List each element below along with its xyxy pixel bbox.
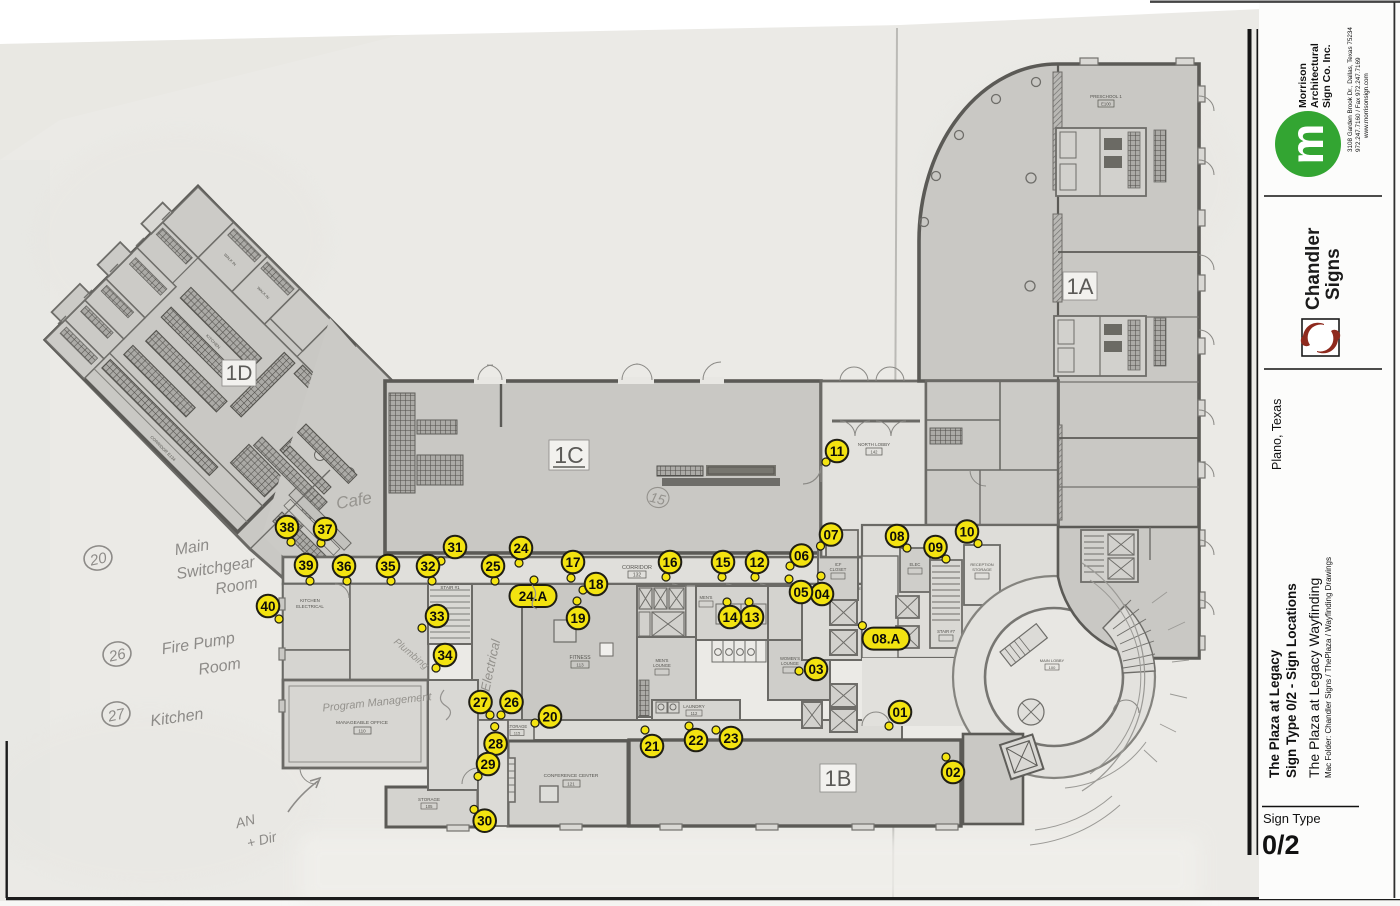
svg-text:31: 31 <box>447 540 463 555</box>
svg-text:1B: 1B <box>825 766 852 791</box>
svg-text:Sign Type: Sign Type <box>1263 811 1321 826</box>
svg-text:STORAGE: STORAGE <box>418 797 440 802</box>
svg-text:38: 38 <box>279 520 295 535</box>
svg-text:15: 15 <box>715 555 731 570</box>
svg-text:09: 09 <box>928 540 943 555</box>
svg-text:28: 28 <box>488 736 504 751</box>
svg-text:26: 26 <box>504 695 520 710</box>
svg-text:The Plaza at Legacy Wayfinding: The Plaza at Legacy Wayfinding <box>1306 578 1322 778</box>
svg-text:110: 110 <box>358 729 366 734</box>
svg-text:01: 01 <box>892 705 908 720</box>
svg-text:16: 16 <box>662 555 678 570</box>
svg-text:ELEC: ELEC <box>910 562 921 567</box>
svg-text:33: 33 <box>429 609 445 624</box>
svg-text:STAIR #7: STAIR #7 <box>937 629 956 634</box>
svg-text:Mac Folder: Chandler Signs / T: Mac Folder: Chandler Signs / ThePlaza / … <box>1324 557 1333 778</box>
svg-text:LOUNGE: LOUNGE <box>781 661 799 666</box>
svg-text:37: 37 <box>317 522 332 537</box>
svg-text:29: 29 <box>480 757 495 772</box>
svg-text:MANAGEABLE OFFICE: MANAGEABLE OFFICE <box>336 720 388 726</box>
svg-text:13: 13 <box>744 610 760 625</box>
svg-text:08: 08 <box>889 529 905 544</box>
svg-text:20: 20 <box>542 709 557 724</box>
svg-text:STORAGE: STORAGE <box>507 724 528 729</box>
svg-text:10: 10 <box>959 524 974 539</box>
svg-text:113: 113 <box>576 663 584 668</box>
svg-text:35: 35 <box>380 559 396 574</box>
svg-text:23: 23 <box>723 731 739 746</box>
svg-text:32: 32 <box>420 559 435 574</box>
svg-text:11: 11 <box>830 444 845 459</box>
svg-text:STORAGE: STORAGE <box>972 567 992 572</box>
svg-text:40: 40 <box>260 599 275 614</box>
svg-text:36: 36 <box>336 559 352 574</box>
svg-text:The Plaza at Legacy: The Plaza at Legacy <box>1267 649 1282 778</box>
svg-text:PRESCHOOL 1: PRESCHOOL 1 <box>1090 94 1122 99</box>
svg-text:17: 17 <box>565 555 580 570</box>
svg-text:07: 07 <box>823 527 838 542</box>
svg-text:MAIN LOBBY: MAIN LOBBY <box>1040 658 1065 663</box>
svg-text:MEN'S: MEN'S <box>700 595 713 600</box>
svg-text:Sign Type 0/2 - Sign Locations: Sign Type 0/2 - Sign Locations <box>1284 583 1299 778</box>
svg-text:142: 142 <box>871 450 879 455</box>
svg-text:03: 03 <box>808 662 824 677</box>
svg-text:27: 27 <box>473 695 488 710</box>
svg-text:1D: 1D <box>226 362 253 385</box>
svg-text:1C: 1C <box>554 442 583 468</box>
svg-text:21: 21 <box>644 739 660 754</box>
svg-text:22: 22 <box>688 733 703 748</box>
svg-text:14: 14 <box>722 610 738 625</box>
svg-text:08.A: 08.A <box>872 631 901 646</box>
svg-text:STAIR #1: STAIR #1 <box>440 585 460 590</box>
svg-text:ELECTRICAL: ELECTRICAL <box>296 604 324 609</box>
svg-text:06: 06 <box>794 548 810 563</box>
svg-text:30: 30 <box>477 814 492 829</box>
svg-text:LOUNGE: LOUNGE <box>653 663 671 668</box>
svg-text:25: 25 <box>485 559 501 574</box>
svg-text:CONFERENCE CENTER: CONFERENCE CENTER <box>544 773 599 779</box>
svg-text:FITNESS: FITNESS <box>569 655 591 661</box>
svg-text:CLOSET: CLOSET <box>830 567 847 572</box>
svg-text:KITCHEN: KITCHEN <box>300 598 320 603</box>
svg-text:34: 34 <box>437 648 453 663</box>
svg-text:121: 121 <box>567 782 575 787</box>
svg-text:04: 04 <box>814 587 830 602</box>
svg-text:05: 05 <box>793 585 809 600</box>
svg-text:105: 105 <box>426 804 434 809</box>
svg-text:18: 18 <box>588 577 604 592</box>
svg-text:NORTH LOBBY: NORTH LOBBY <box>858 442 890 447</box>
svg-text:112: 112 <box>691 711 698 716</box>
svg-text:Plano, Texas: Plano, Texas <box>1270 399 1284 470</box>
svg-text:132: 132 <box>633 573 642 579</box>
svg-text:CORRIDOR: CORRIDOR <box>622 565 652 571</box>
svg-text:m: m <box>1281 124 1333 165</box>
svg-text:12: 12 <box>749 555 764 570</box>
svg-text:1A: 1A <box>1067 274 1094 299</box>
svg-text:100: 100 <box>1049 665 1056 670</box>
svg-text:E100: E100 <box>1101 102 1111 107</box>
svg-text:02: 02 <box>945 765 960 780</box>
svg-text:115: 115 <box>514 731 521 736</box>
svg-text:0/2: 0/2 <box>1262 830 1300 860</box>
svg-text:24: 24 <box>513 541 529 556</box>
svg-text:LAUNDRY: LAUNDRY <box>683 704 704 709</box>
svg-text:39: 39 <box>298 558 313 573</box>
svg-text:19: 19 <box>570 611 585 626</box>
